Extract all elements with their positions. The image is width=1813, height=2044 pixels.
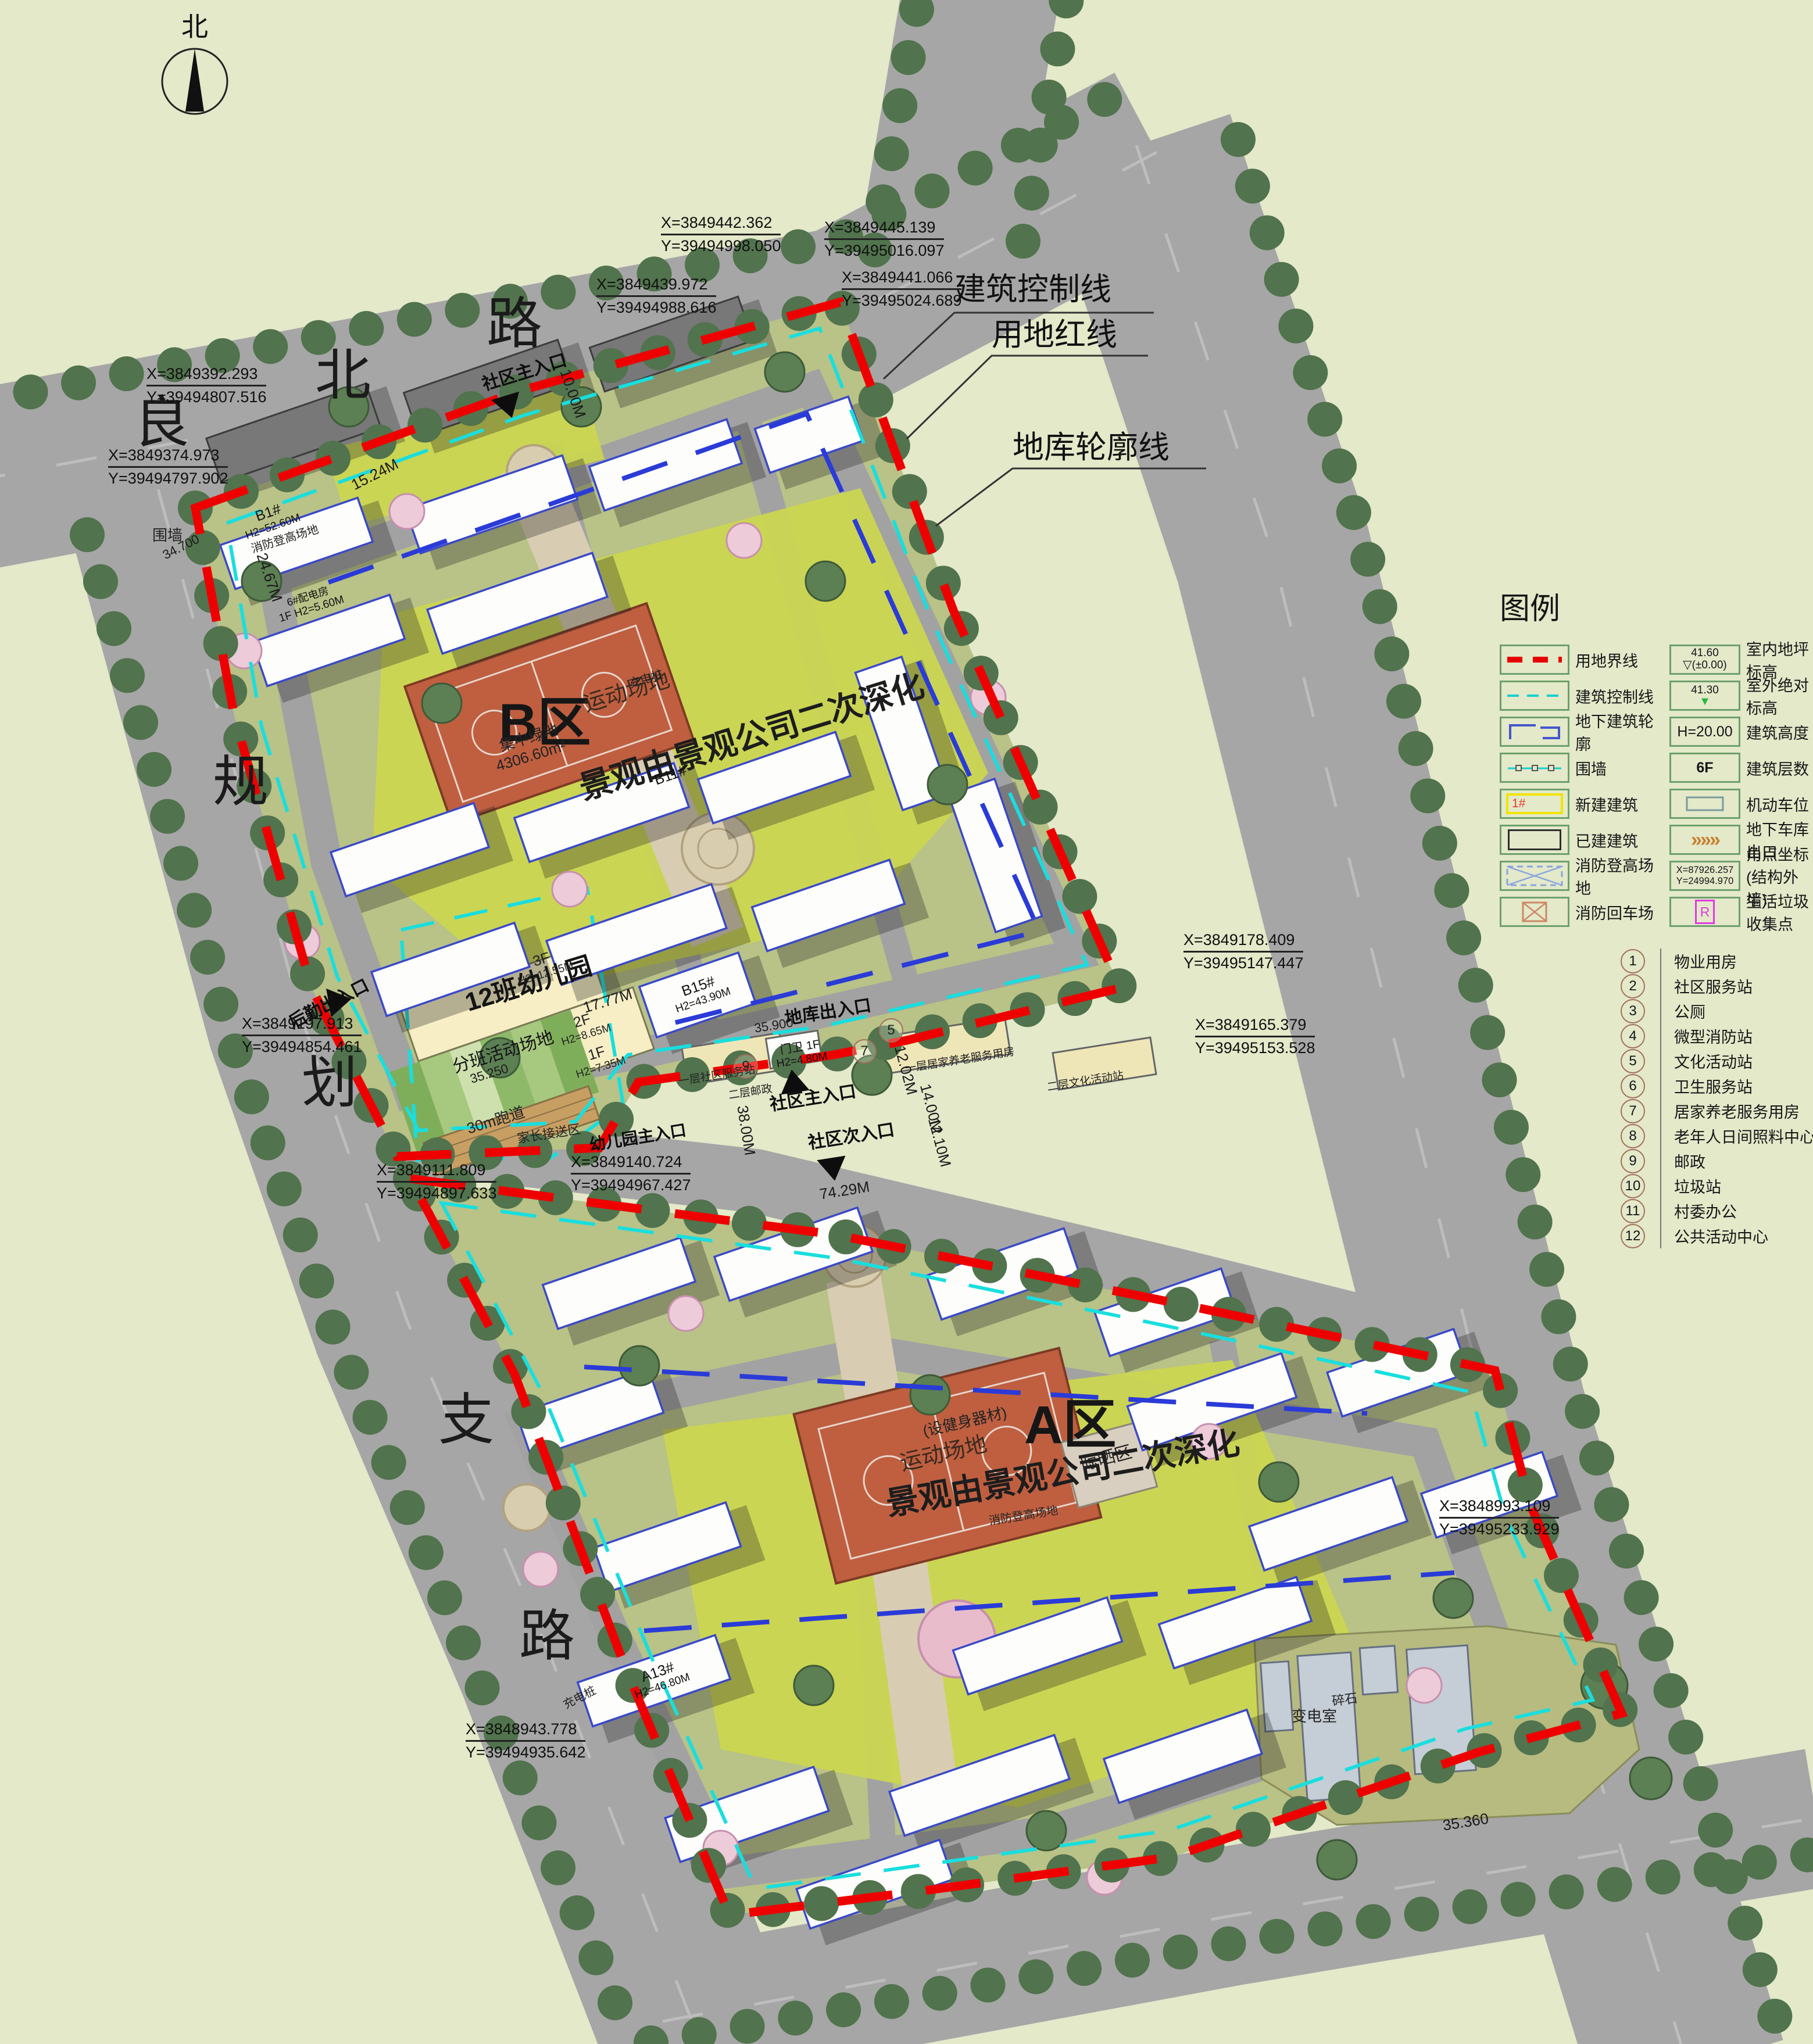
north-label: 北	[181, 13, 208, 41]
substation-label: 变电室	[1292, 1709, 1337, 1724]
legend-num-label: 居家养老服务用房	[1660, 1098, 1813, 1123]
filled-triangle-icon: ▼	[1699, 696, 1711, 707]
legend-num-label: 微型消防站	[1660, 1023, 1813, 1048]
legend-label: 用地界线	[1575, 649, 1664, 671]
legend-symbol-outdoor-level: 41.30▼	[1669, 681, 1740, 711]
road-name-north-3: 路	[487, 295, 542, 354]
legend-symbol-fence	[1500, 753, 1569, 783]
coord-label: X=3849178.409Y=39495147.447	[1183, 931, 1303, 972]
zone-a-name: A区	[1024, 1397, 1116, 1454]
legend-symbol-fire-lane-site	[1500, 861, 1569, 891]
legend-label: 消防登高场地	[1575, 853, 1664, 898]
legend-num: 6	[1621, 1074, 1645, 1098]
coord-label: X=3849439.972Y=39494988.616	[596, 275, 716, 317]
coord-label: X=3848993.109Y=39495233.929	[1439, 1497, 1559, 1538]
legend-num: 1	[1621, 949, 1645, 973]
legend-num: 2	[1621, 974, 1645, 998]
legend-label: 建筑层数	[1746, 757, 1813, 779]
basement-outline-icon	[1506, 721, 1564, 743]
legend-num-label: 社区服务站	[1660, 973, 1813, 998]
legend-label: 建筑高度	[1746, 721, 1813, 743]
legend-symbol-building-height: H=20.00	[1669, 717, 1740, 747]
coord-label: X=3849197.913Y=39494854.461	[242, 1015, 362, 1056]
legend-symbol-basement-outline	[1500, 717, 1569, 747]
plan-number-7: 7	[852, 1039, 877, 1064]
fire-turnaround-icon	[1506, 901, 1564, 923]
garage-exit-chevrons-icon: »»»	[1691, 830, 1719, 850]
legend-title: 图例	[1500, 584, 1813, 628]
legend-num: 9	[1621, 1149, 1645, 1173]
site-plan-canvas: 北 良 北 路 规 划 支 路 建筑控制线 用地红线 地库轮廓线 B区 A区 景…	[0, 0, 1813, 2044]
legend-label: 机动车位	[1746, 793, 1813, 815]
legend-num: 10	[1621, 1174, 1645, 1198]
road-name-west-1: 规	[213, 753, 269, 812]
legend-num: 8	[1621, 1124, 1645, 1148]
legend-num: 12	[1621, 1224, 1645, 1248]
legend-symbol-indoor-level: 41.60▽(±0.00)	[1669, 645, 1740, 675]
legend-symbol-waste-point: R	[1669, 897, 1740, 927]
legend-label: 新建建筑	[1575, 793, 1664, 815]
legend-num-label: 文化活动站	[1660, 1048, 1813, 1073]
coord-label: X=3849140.724Y=39494967.427	[571, 1153, 691, 1194]
legend-label: 已建建筑	[1575, 829, 1664, 851]
fire-lane-site-icon	[1506, 865, 1564, 887]
legend-num-label: 村委办公	[1660, 1198, 1813, 1223]
road-name-north-2: 北	[315, 347, 371, 406]
legend-num-label: 公厕	[1660, 998, 1813, 1023]
legend-symbol-new-building: 1#	[1500, 789, 1569, 819]
legend-num: 11	[1621, 1199, 1645, 1223]
legend-num: 7	[1621, 1099, 1645, 1123]
legend-grid: 用地界线 41.60▽(±0.00) 室内地坪标高 建筑控制线 41.30▼ 室…	[1500, 643, 1813, 929]
legend-num-label: 老年人日间照料中心	[1660, 1123, 1813, 1148]
callout-garage-outline: 地库轮廓线	[1013, 431, 1170, 464]
callout-red-line: 用地红线	[992, 318, 1117, 352]
legend-symbol-garage-exit: »»»	[1669, 825, 1740, 855]
plan-number-5: 5	[879, 1018, 903, 1043]
legend-label: 建筑控制线	[1575, 685, 1664, 707]
legend-symbol-existing-building	[1500, 825, 1569, 855]
legend-num-label: 物业用房	[1660, 948, 1813, 973]
legend-symbol-site-boundary	[1500, 645, 1569, 675]
legend-num-label: 邮政	[1660, 1148, 1813, 1173]
legend-symbol-corner-coords: X=87926.257Y=24994.970	[1669, 861, 1740, 891]
legend-numbered-list: 1物业用房 2社区服务站 3公厕 4微型消防站 5文化活动站 6卫生服务站 7居…	[1621, 948, 1813, 1248]
coord-label: X=3849392.293Y=39494807.516	[146, 365, 266, 406]
fence-icon	[1506, 757, 1564, 779]
parking-space-icon	[1685, 795, 1725, 812]
legend-num: 4	[1621, 1024, 1645, 1048]
coord-label: X=3849442.362Y=39494998.050	[661, 214, 781, 255]
legend-num-label: 卫生服务站	[1660, 1073, 1813, 1098]
road-name-west-2: 划	[302, 1054, 357, 1113]
open-triangle-icon: ▽	[1683, 658, 1692, 671]
gravel-label: 碎石	[1331, 1691, 1358, 1708]
legend-label: 室外绝对标高	[1746, 673, 1813, 718]
legend-num: 3	[1621, 999, 1645, 1023]
legend-label: 地下建筑轮廓	[1575, 709, 1664, 754]
legend-label: 围墙	[1575, 757, 1664, 779]
coord-label: X=3849111.809Y=39494897.633	[377, 1161, 496, 1202]
legend-label: 消防回车场	[1575, 901, 1664, 923]
legend-panel: 图例 用地界线 41.60▽(±0.00) 室内地坪标高 建筑控制线 41.30…	[1500, 584, 1813, 1248]
coord-label: X=3849441.066Y=39495024.689	[842, 269, 961, 310]
road-name-west-3: 支	[438, 1391, 494, 1450]
coord-label: X=3849445.139Y=39495016.097	[824, 219, 944, 260]
legend-label: 生活垃圾收集点	[1746, 889, 1813, 935]
callout-control-line: 建筑控制线	[954, 273, 1111, 306]
legend-symbol-parking-space	[1669, 789, 1740, 819]
coord-label: X=3849165.379Y=39495153.528	[1195, 1016, 1315, 1057]
legend-num-label: 垃圾站	[1660, 1173, 1813, 1198]
legend-symbol-fire-turnaround	[1500, 897, 1569, 927]
legend-symbol-control-line	[1500, 681, 1569, 711]
legend-symbol-storeys: 6F	[1669, 753, 1740, 783]
coord-label: X=3849374.973Y=39494797.902	[108, 446, 228, 488]
legend-num: 5	[1621, 1049, 1645, 1073]
coord-label: X=3848943.778Y=39494935.642	[466, 1720, 585, 1762]
legend-num-label: 公共活动中心	[1660, 1223, 1813, 1248]
road-name-west-4: 路	[519, 1608, 575, 1666]
